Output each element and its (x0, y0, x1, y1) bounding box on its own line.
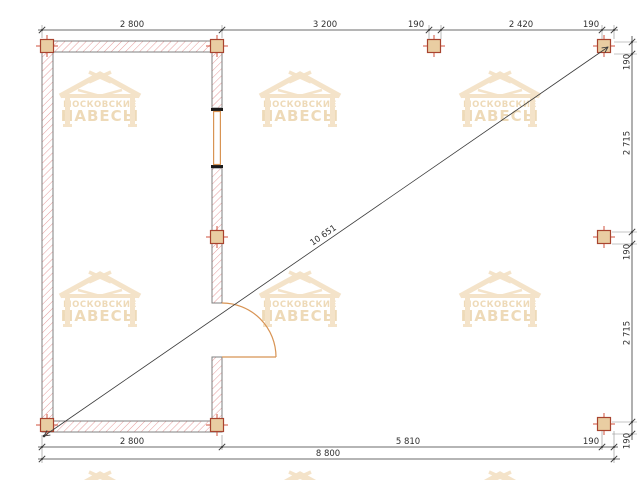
diagonal-dimension-line (44, 47, 608, 436)
column-marker (206, 414, 228, 436)
dimension-dot (41, 458, 43, 460)
dimension-dot (613, 29, 615, 31)
dim-label-right-2715a: 2 715 (623, 131, 633, 155)
column-icon (41, 40, 54, 53)
column-marker (593, 413, 615, 435)
column-marker (206, 35, 228, 57)
dim-label-top-2800: 2 800 (120, 20, 144, 30)
dimension-dot (41, 446, 43, 448)
column-marker (593, 226, 615, 248)
wall-bottom (42, 421, 222, 432)
dimension-dot (428, 29, 430, 31)
dim-label-top-190a: 190 (408, 20, 424, 30)
column-icon (598, 418, 611, 431)
dim-label-total-8800: 8 800 (316, 449, 340, 459)
door (222, 303, 276, 357)
dimension-dot (631, 41, 633, 43)
dim-label-right-190c: 190 (623, 433, 633, 449)
window (211, 108, 223, 168)
column-marker (423, 35, 445, 57)
diagonal-start-dot (43, 435, 46, 438)
dim-label-right-190a: 190 (623, 54, 633, 70)
dimension-dot (221, 29, 223, 31)
dimension-dot (613, 446, 615, 448)
dim-label-right-190b: 190 (623, 244, 633, 260)
dim-label-top-190b: 190 (583, 20, 599, 30)
column-icon (598, 40, 611, 53)
dim-label-top-3200: 3 200 (313, 20, 337, 30)
column-marker (36, 35, 58, 57)
dim-label-bottom-190: 190 (583, 437, 599, 447)
dimension-dot (41, 29, 43, 31)
dimension-lines (38, 30, 632, 459)
dimension-labels: 2 800 3 200 190 2 420 190 190 2 715 190 … (120, 20, 633, 459)
column-icon (211, 419, 224, 432)
column-marker (36, 414, 58, 436)
column-icon (211, 40, 224, 53)
door-swing-arc (222, 303, 276, 357)
window-cap-top (211, 108, 223, 111)
dim-label-bottom-2800: 2 800 (120, 437, 144, 447)
window-cap-bottom (211, 165, 223, 168)
dim-label-bottom-5810: 5 810 (396, 437, 420, 447)
walls (42, 41, 222, 432)
column-icon (428, 40, 441, 53)
column-icon (41, 419, 54, 432)
extension-lines (42, 25, 637, 463)
dimension-dot (631, 231, 633, 233)
dim-label-right-2715b: 2 715 (623, 321, 633, 345)
window-frame (214, 112, 221, 165)
dimension-ticks (39, 27, 635, 462)
column-marker (206, 226, 228, 248)
dimension-dot (221, 446, 223, 448)
dimension-dot (440, 29, 442, 31)
floor-plan-drawing: 2 800 3 200 190 2 420 190 190 2 715 190 … (0, 0, 640, 480)
wall-top (42, 41, 222, 52)
column-icon (598, 231, 611, 244)
column-icon (211, 231, 224, 244)
column-marker (593, 35, 615, 57)
dimension-dot (601, 29, 603, 31)
dimension-dot (631, 421, 633, 423)
dim-label-top-2420: 2 420 (509, 20, 533, 30)
wall-left (42, 41, 53, 432)
floor-plan-canvas: МОСКОВСКИЕНАВЕСЫМОСКОВСКИЕНАВЕСЫМОСКОВСК… (0, 0, 640, 480)
dimension-dot (613, 458, 615, 460)
dimension-dot (601, 446, 603, 448)
